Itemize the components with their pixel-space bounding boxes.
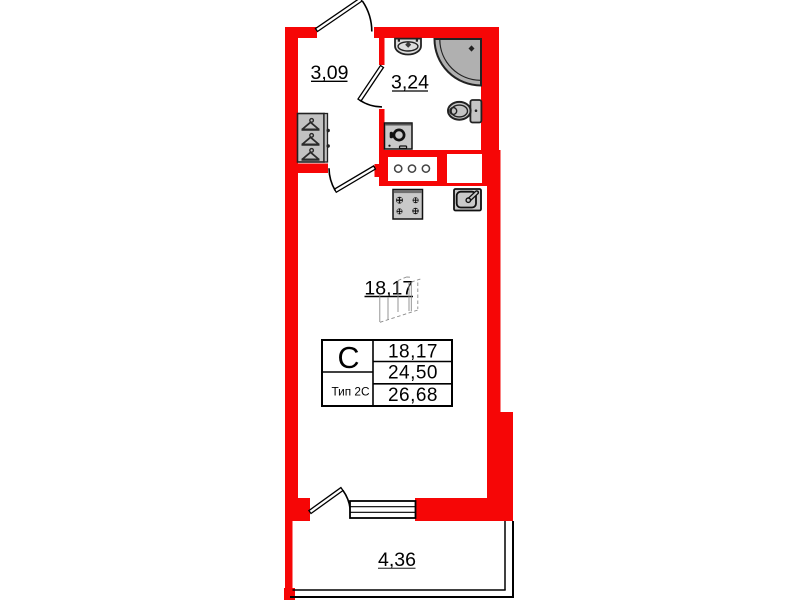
svg-text:24,50: 24,50: [388, 362, 438, 383]
svg-text:3,09: 3,09: [311, 62, 349, 84]
svg-text:26,68: 26,68: [388, 385, 438, 406]
svg-text:18,17: 18,17: [388, 341, 438, 362]
svg-text:С: С: [337, 341, 359, 375]
svg-text:Тип 2С: Тип 2С: [331, 385, 370, 399]
svg-text:3,24: 3,24: [391, 72, 429, 94]
